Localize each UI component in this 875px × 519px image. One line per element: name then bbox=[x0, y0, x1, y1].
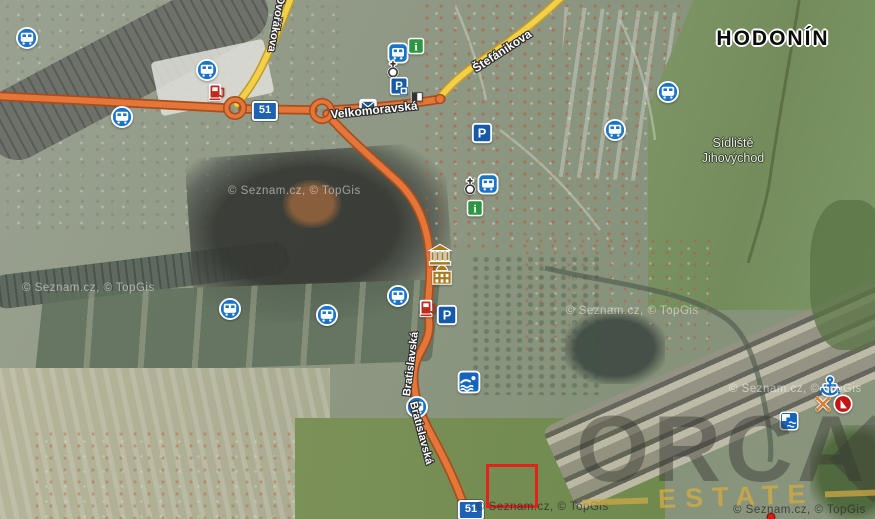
palace-icon[interactable] bbox=[429, 262, 455, 288]
copyright-watermark: © Seznam.cz, © TopGis bbox=[729, 383, 862, 395]
street-label: Štefánikova bbox=[470, 27, 534, 75]
svg-text:P: P bbox=[443, 308, 452, 323]
street-label: Velkomoravská bbox=[330, 98, 418, 121]
bus-icon[interactable] bbox=[316, 304, 339, 327]
bus-icon[interactable] bbox=[604, 119, 627, 142]
bus-icon[interactable] bbox=[111, 106, 134, 129]
district-label: Sídliště Jihovýchod bbox=[702, 136, 765, 166]
street-label: Dvořákova bbox=[265, 0, 287, 53]
bus-icon[interactable] bbox=[196, 59, 219, 82]
swim-icon[interactable] bbox=[457, 370, 482, 395]
brand-sub-text: ESTATE bbox=[658, 481, 815, 513]
bus-icon[interactable] bbox=[657, 81, 680, 104]
copyright-watermark: © Seznam.cz, © TopGis bbox=[566, 305, 699, 317]
city-label: HODONÍN bbox=[716, 27, 829, 51]
parking-icon[interactable]: P bbox=[436, 304, 458, 326]
road-number-badge: 51 bbox=[252, 101, 278, 121]
district-label-line2: Jihovýchod bbox=[702, 151, 765, 166]
copyright-watermark: © Seznam.cz, © TopGis bbox=[228, 185, 361, 197]
bus-icon[interactable] bbox=[387, 285, 410, 308]
info-icon[interactable]: i bbox=[466, 199, 485, 218]
bus-icon[interactable] bbox=[219, 298, 242, 321]
copyright-watermark: © Seznam.cz, © TopGis bbox=[22, 282, 155, 294]
street-label: Bratislavská bbox=[401, 331, 421, 397]
fuel-icon[interactable] bbox=[205, 80, 229, 104]
district-label-line1: Sídliště bbox=[702, 136, 765, 151]
svg-text:P: P bbox=[478, 126, 487, 141]
bus-icon[interactable] bbox=[16, 27, 39, 50]
map-canvas[interactable]: iPPiPDvořákovaVelkomoravskáŠtefánikovaBr… bbox=[0, 0, 875, 519]
brand-rule-right bbox=[824, 488, 875, 497]
parking-icon[interactable]: P bbox=[471, 122, 493, 144]
brand-rule-left bbox=[582, 497, 648, 505]
street-label: Bratislavská bbox=[407, 400, 435, 466]
info-icon[interactable]: i bbox=[407, 37, 426, 56]
church-icon[interactable] bbox=[459, 176, 481, 198]
